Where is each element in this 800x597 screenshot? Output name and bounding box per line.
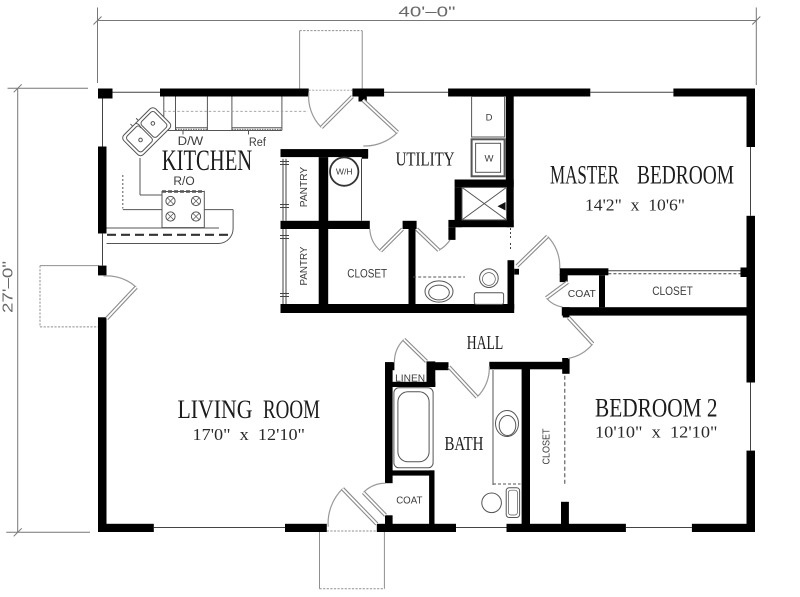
svg-text:CLOSET: CLOSET (541, 428, 553, 464)
svg-text:17'0" x 12'10": 17'0" x 12'10" (193, 425, 306, 444)
svg-text:LIVING: LIVING (178, 395, 253, 424)
svg-text:COAT: COAT (568, 288, 597, 300)
svg-text:LINEN: LINEN (395, 373, 425, 385)
svg-text:CLOSET: CLOSET (347, 267, 387, 281)
svg-text:BEDROOM: BEDROOM (637, 161, 734, 190)
svg-text:CLOSET: CLOSET (652, 286, 693, 298)
svg-text:BATH: BATH (445, 433, 484, 455)
svg-text:D: D (486, 113, 493, 124)
svg-text:14'2" x 10'6": 14'2" x 10'6" (585, 196, 685, 215)
svg-text:BEDROOM 2: BEDROOM 2 (595, 394, 718, 423)
svg-text:UTILITY: UTILITY (396, 149, 455, 171)
svg-text:KITCHEN: KITCHEN (162, 144, 253, 177)
svg-text:PANTRY: PANTRY (298, 247, 310, 286)
svg-text:COAT: COAT (396, 495, 423, 507)
svg-text:40'–0": 40'–0" (398, 4, 455, 21)
svg-text:27'–0": 27'–0" (0, 261, 17, 313)
svg-text:W/H: W/H (336, 167, 353, 177)
svg-text:R/O: R/O (173, 176, 194, 188)
svg-text:PANTRY: PANTRY (298, 167, 310, 207)
svg-text:10'10" x 12'10": 10'10" x 12'10" (595, 423, 718, 442)
svg-text:MASTER: MASTER (550, 161, 619, 190)
svg-text:ROOM: ROOM (263, 395, 320, 424)
svg-text:W: W (485, 154, 494, 165)
svg-text:HALL: HALL (467, 332, 504, 354)
